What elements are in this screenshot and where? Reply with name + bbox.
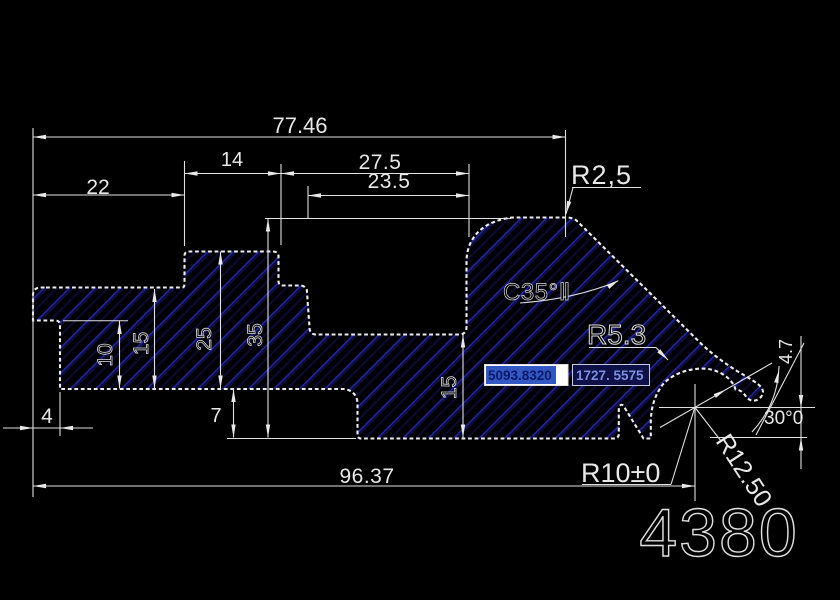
svg-text:96.37: 96.37 xyxy=(339,465,394,488)
svg-text:1727. 5575: 1727. 5575 xyxy=(576,368,644,383)
svg-text:25: 25 xyxy=(193,327,216,350)
svg-text:C35°Ⅱ: C35°Ⅱ xyxy=(503,279,571,306)
svg-text:4380: 4380 xyxy=(639,495,798,571)
svg-text:23.5: 23.5 xyxy=(368,170,411,193)
svg-text:5093.8320: 5093.8320 xyxy=(488,368,552,383)
svg-text:15: 15 xyxy=(130,332,153,355)
svg-text:4.7: 4.7 xyxy=(776,339,796,364)
svg-text:22: 22 xyxy=(86,176,109,199)
svg-text:R10±0: R10±0 xyxy=(581,458,660,488)
svg-text:77.46: 77.46 xyxy=(272,113,327,138)
svg-text:35: 35 xyxy=(244,323,267,346)
svg-text:10: 10 xyxy=(94,343,117,366)
svg-text:14: 14 xyxy=(221,149,243,171)
svg-text:4: 4 xyxy=(41,405,53,428)
svg-text:30°0: 30°0 xyxy=(764,408,803,429)
svg-text:R2,5: R2,5 xyxy=(571,160,632,190)
svg-text:7: 7 xyxy=(210,405,221,427)
svg-text:15: 15 xyxy=(438,376,461,399)
svg-text:R5.3: R5.3 xyxy=(587,319,646,350)
